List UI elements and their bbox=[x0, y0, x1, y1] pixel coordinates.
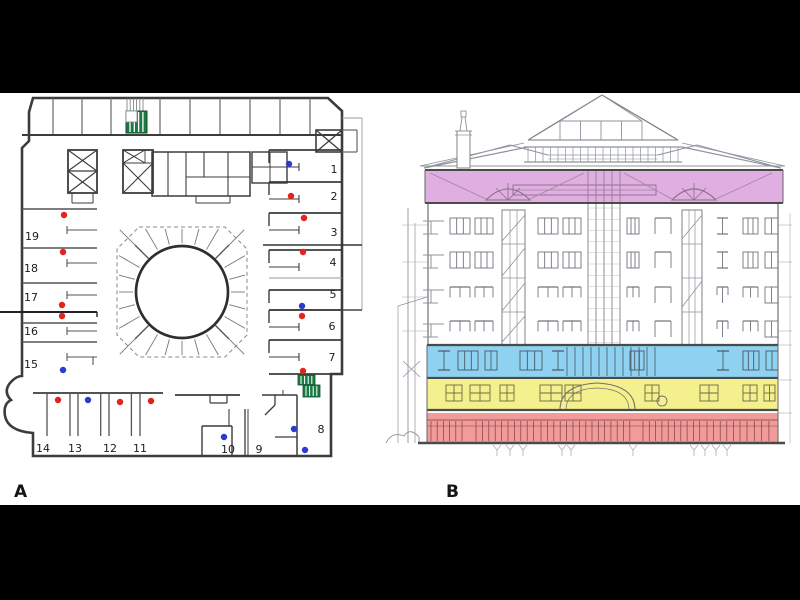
room-number: 1 bbox=[331, 163, 338, 176]
stairwell-window-strip bbox=[502, 210, 525, 345]
figure-content: 12345678910111213141516171819 bbox=[0, 93, 800, 505]
room-number: 4 bbox=[330, 256, 337, 269]
occupant-dot-red bbox=[300, 368, 306, 374]
room-number: 13 bbox=[68, 442, 82, 455]
band-2 bbox=[427, 345, 778, 378]
occupant-dot-blue bbox=[291, 426, 297, 432]
occupant-dot-red bbox=[301, 215, 307, 221]
room-number: 11 bbox=[133, 442, 147, 455]
room-number: 17 bbox=[24, 291, 38, 304]
room-number: 12 bbox=[103, 442, 117, 455]
occupant-dot-red bbox=[59, 313, 65, 319]
atrium-circle bbox=[136, 246, 228, 338]
occupant-dot-blue bbox=[299, 303, 305, 309]
occupant-dot-red bbox=[61, 212, 67, 218]
letterbox-bottom bbox=[0, 505, 800, 600]
stairwell-window-strip bbox=[682, 210, 702, 345]
room-number: 14 bbox=[36, 442, 50, 455]
band-4 bbox=[427, 413, 778, 443]
occupant-dot-blue bbox=[85, 397, 91, 403]
panel-b-label: B bbox=[446, 482, 459, 502]
figure-canvas: 12345678910111213141516171819 A B bbox=[0, 0, 800, 600]
occupant-dot-red bbox=[288, 193, 294, 199]
occupant-dot-red bbox=[300, 249, 306, 255]
elevator-shaft bbox=[123, 150, 153, 193]
occupant-dot-blue bbox=[221, 434, 227, 440]
room-number: 8 bbox=[318, 423, 325, 436]
floor-plan-panel: 12345678910111213141516171819 bbox=[0, 93, 400, 505]
room-number: 9 bbox=[256, 443, 263, 456]
room-number: 18 bbox=[24, 262, 38, 275]
room-number: 15 bbox=[24, 358, 38, 371]
room-number: 2 bbox=[331, 190, 338, 203]
occupant-dot-red bbox=[148, 398, 154, 404]
occupant-dot-red bbox=[299, 313, 305, 319]
occupant-dot-blue bbox=[60, 367, 66, 373]
occupant-dot-blue bbox=[302, 447, 308, 453]
letterbox-top bbox=[0, 0, 800, 93]
room-number: 10 bbox=[221, 443, 235, 456]
panel-a-label: A bbox=[14, 482, 27, 502]
chimney bbox=[457, 131, 470, 168]
room-number: 19 bbox=[25, 230, 39, 243]
room-number: 6 bbox=[329, 320, 336, 333]
occupant-dot-red bbox=[117, 399, 123, 405]
room-number: 5 bbox=[330, 288, 337, 301]
occupant-dot-red bbox=[60, 249, 66, 255]
occupant-dot-red bbox=[55, 397, 61, 403]
room-number: 3 bbox=[331, 226, 338, 239]
elevation-panel bbox=[380, 93, 800, 505]
room-number: 16 bbox=[24, 325, 38, 338]
occupant-dot-blue bbox=[286, 161, 292, 167]
room-number: 7 bbox=[329, 351, 336, 364]
occupant-dot-red bbox=[59, 302, 65, 308]
